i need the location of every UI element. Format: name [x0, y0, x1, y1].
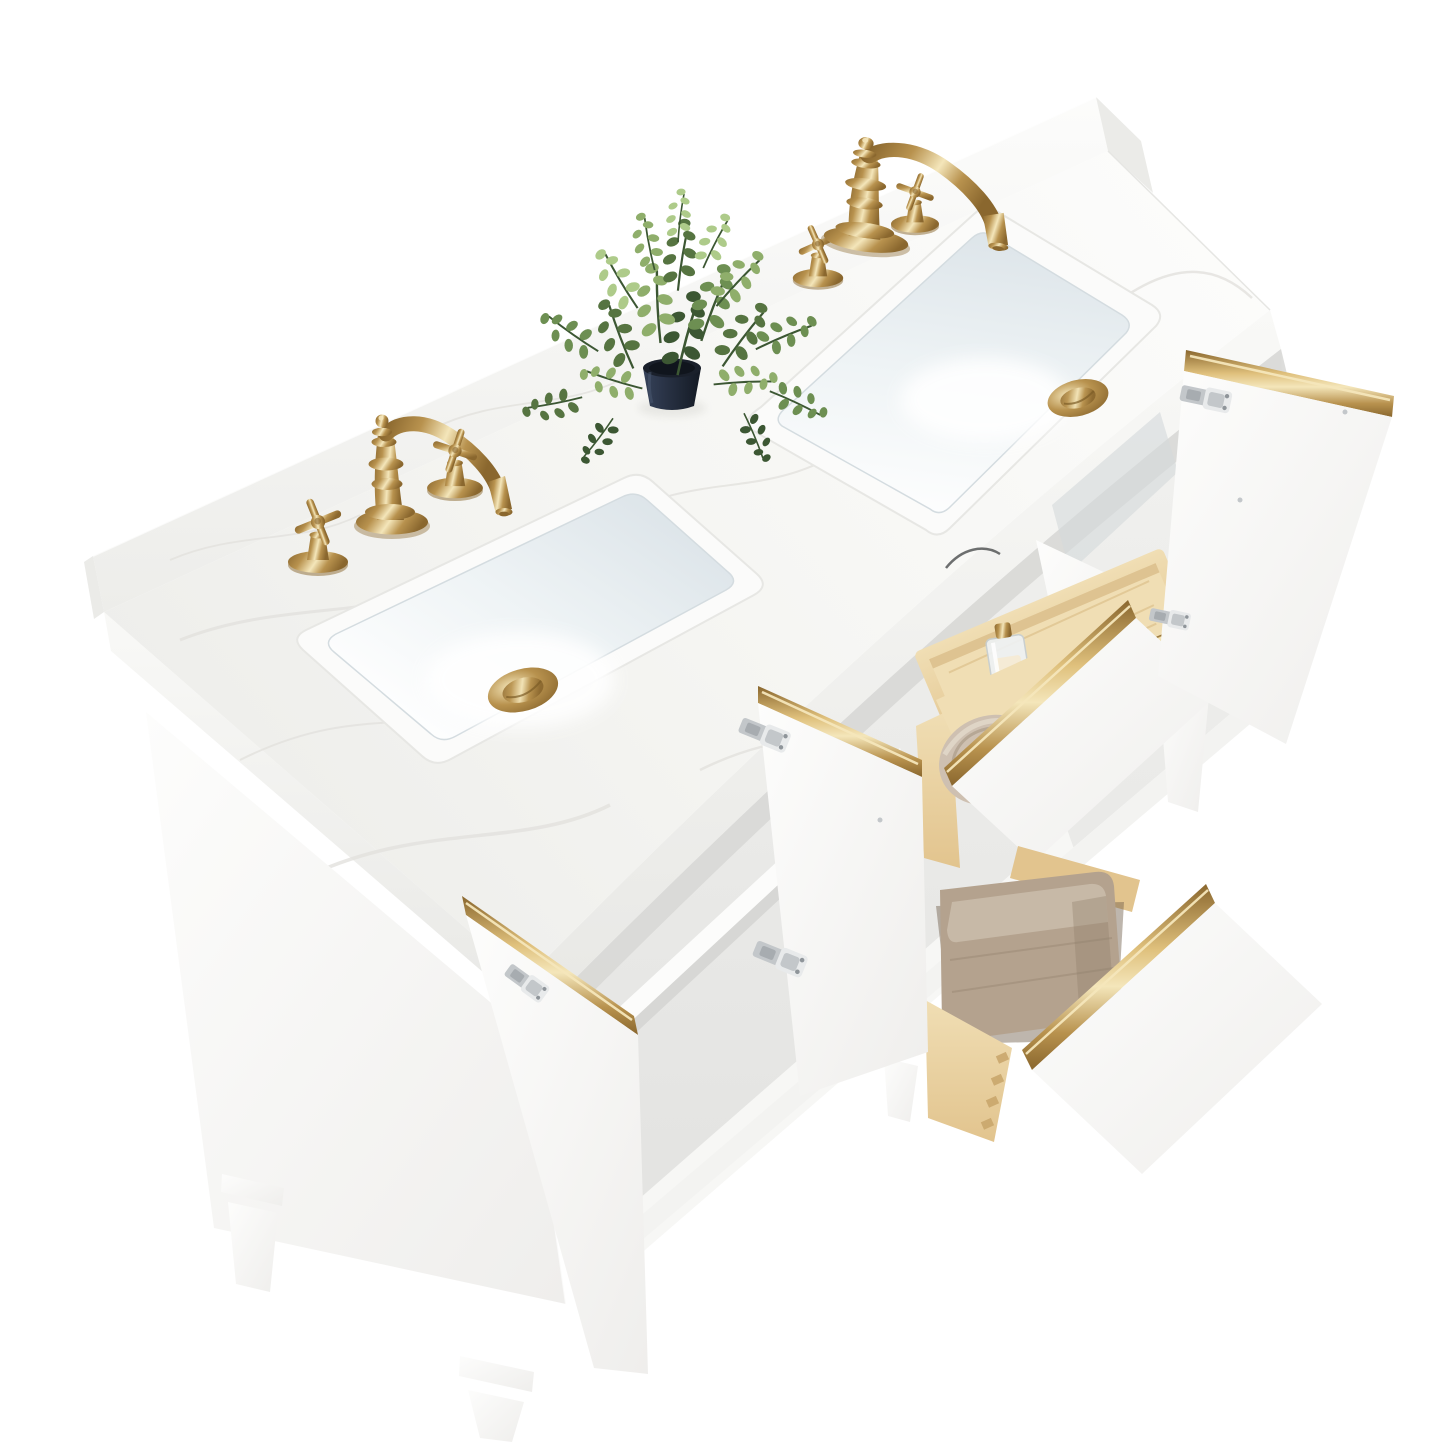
bottom-drawer — [925, 846, 1322, 1174]
product-photo-canvas: Overhead three-quarter product photo of … — [0, 0, 1445, 1445]
right-door — [1148, 350, 1394, 744]
door-face — [1158, 371, 1392, 744]
vanity-leg — [228, 1202, 278, 1292]
vanity-photo: Overhead three-quarter product photo of … — [0, 0, 1445, 1445]
vanity-leg — [468, 1390, 524, 1442]
plant-pot — [643, 359, 701, 411]
vanity-leg — [884, 1058, 918, 1122]
vanity-leg — [459, 1356, 534, 1392]
